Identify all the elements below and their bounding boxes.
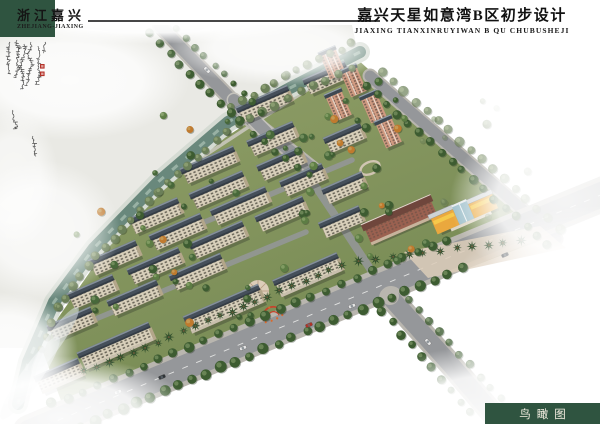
drawing-title-label: 鸟瞰图 [513,406,572,422]
aerial-rendering [0,0,600,424]
org-name-en: ZHEJIANG-JIAXING [17,24,84,30]
org-name-zh: 浙江嘉兴 [17,5,85,24]
project-title-en: JIAXING TIANXINRUYIWAN B QU CHUBUSHEJI [330,26,594,35]
project-title-zh: 嘉兴天星如意湾B区初步设计 [330,4,594,25]
drawing-title-box: 鸟瞰图 [485,403,600,424]
calligraphy-annotation [2,38,52,178]
presentation-board: 浙江嘉兴 ZHEJIANG-JIAXING 嘉兴天星如意湾B区初步设计 JIAX… [0,0,600,424]
project-title-block: 嘉兴天星如意湾B区初步设计 JIAXING TIANXINRUYIWAN B Q… [330,4,594,35]
